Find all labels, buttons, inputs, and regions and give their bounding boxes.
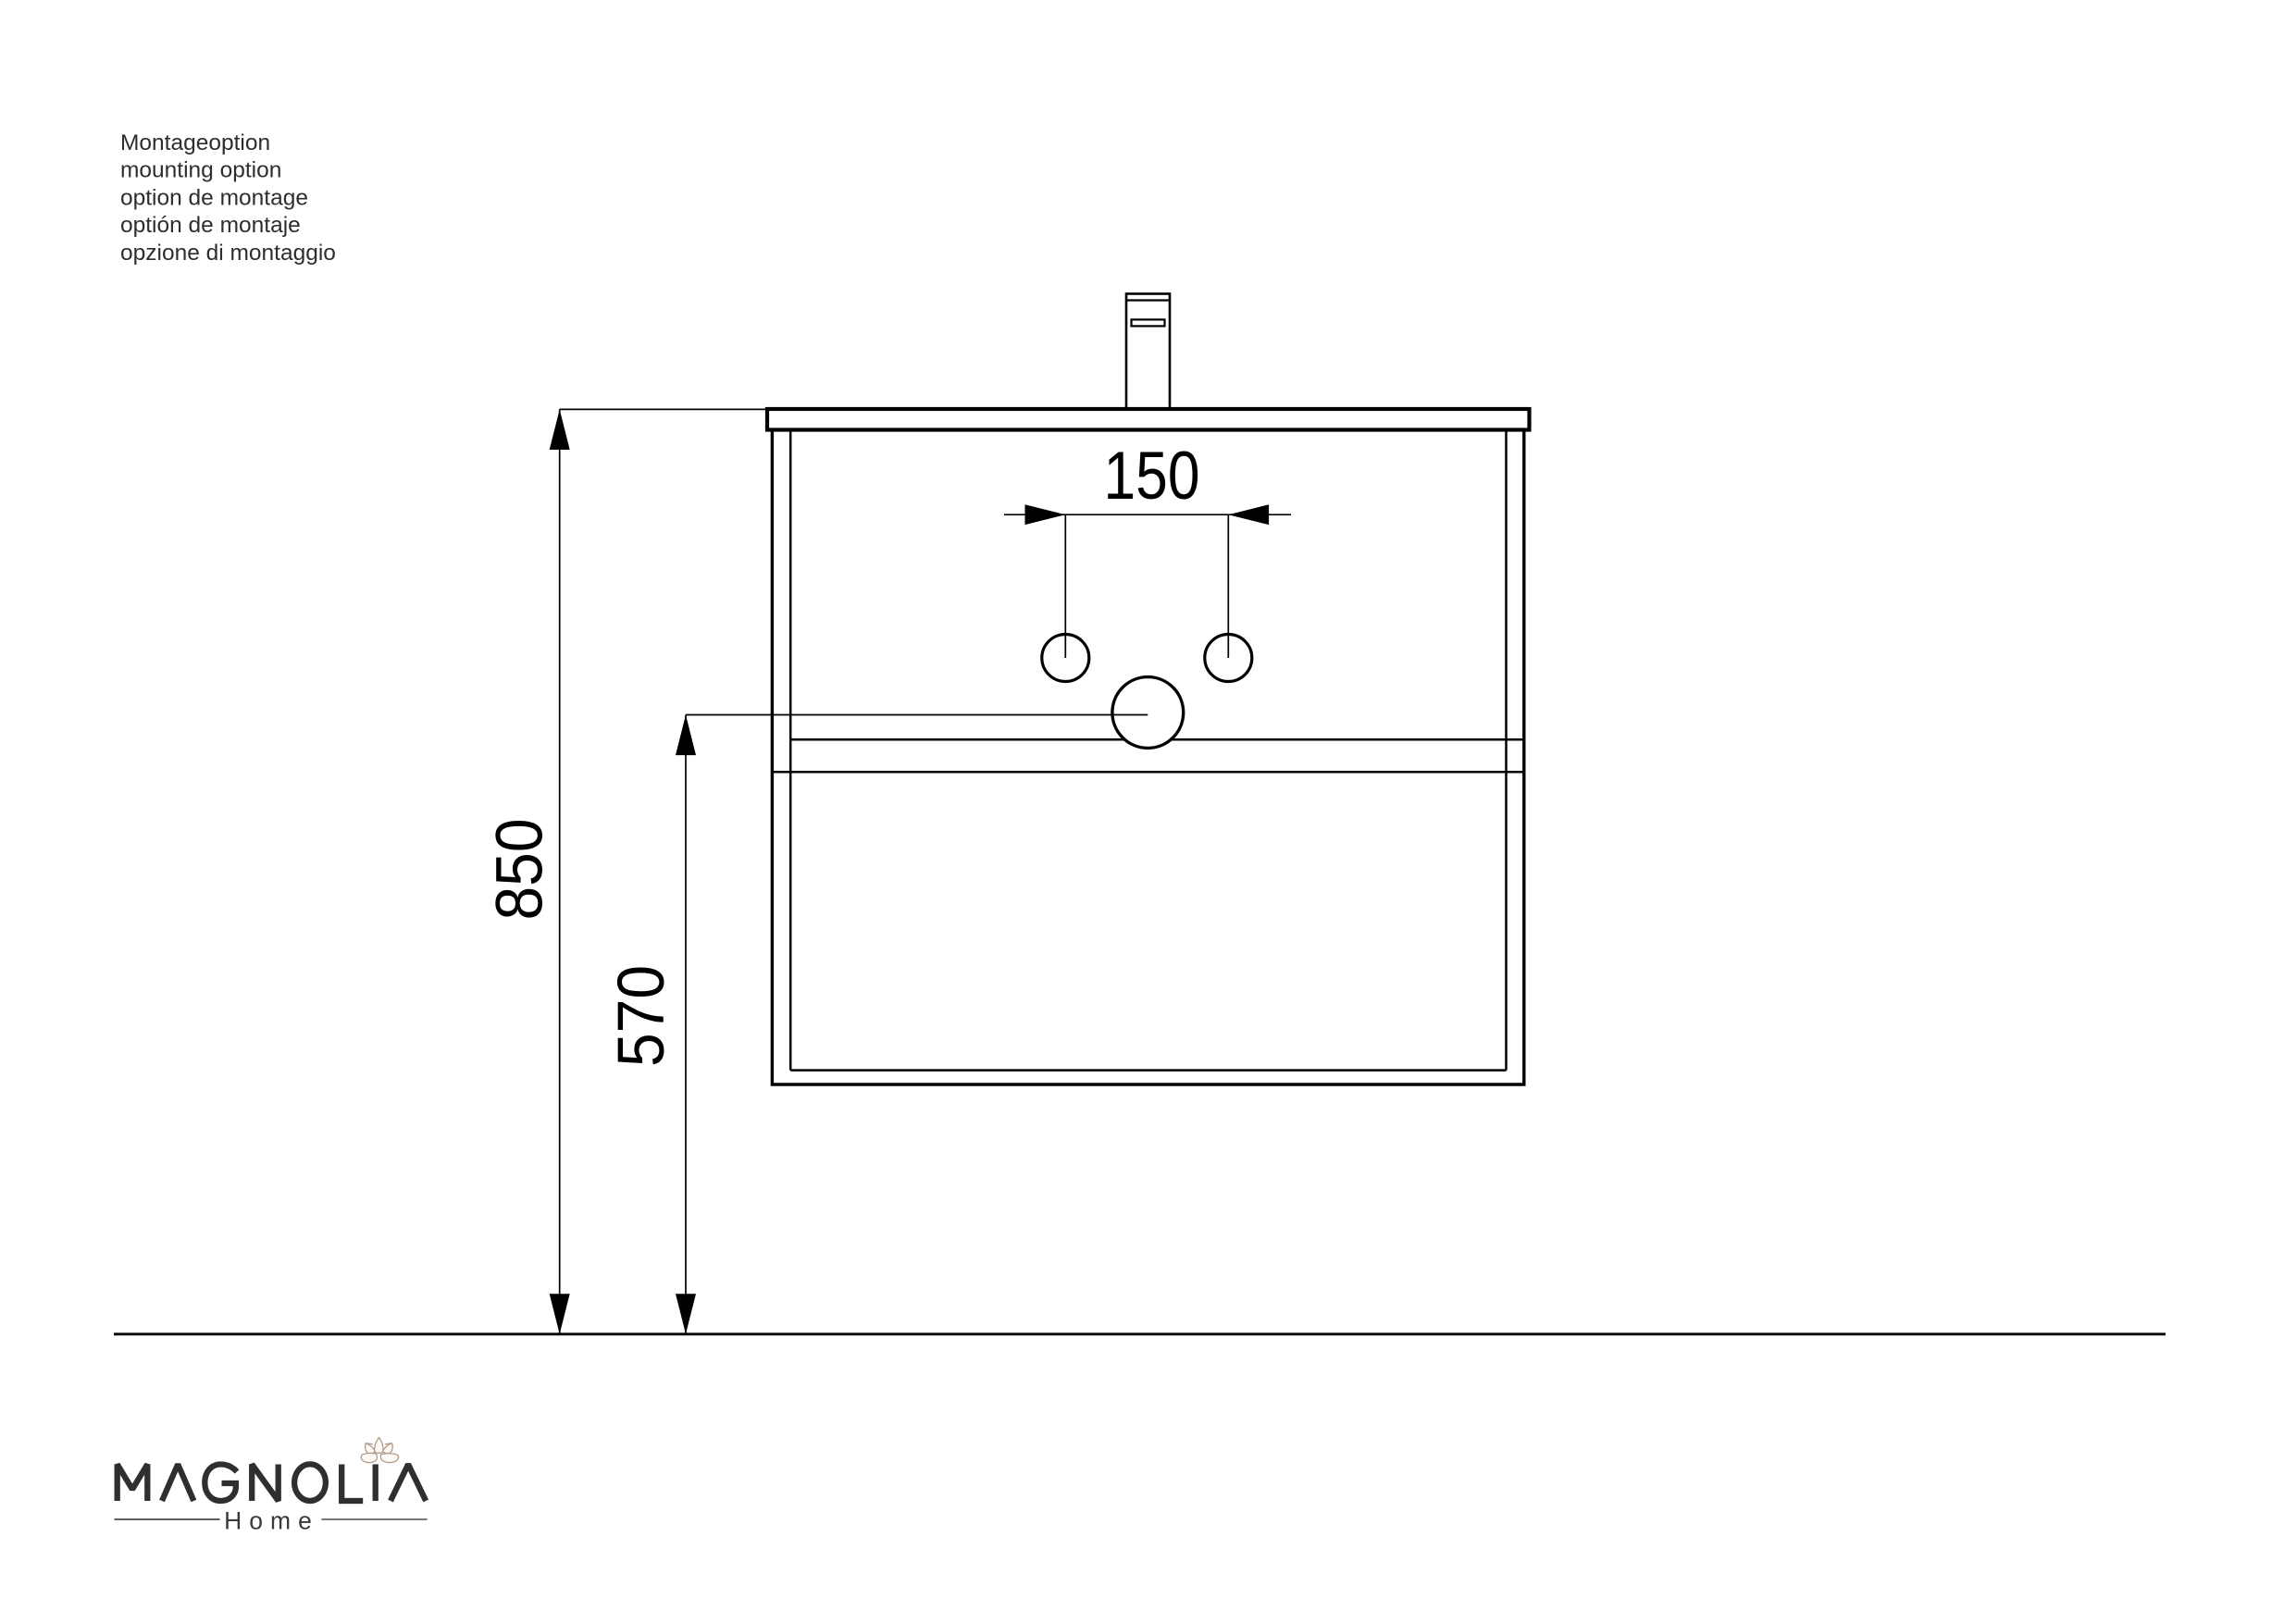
svg-text:opzione di montaggio: opzione di montaggio [120, 241, 336, 266]
svg-text:mounting option: mounting option [120, 158, 281, 183]
svg-text:570: 570 [604, 965, 678, 1067]
svg-text:Home: Home [224, 1507, 319, 1535]
svg-text:Montageoption: Montageoption [120, 130, 270, 155]
svg-text:option de montage: option de montage [120, 185, 308, 210]
svg-text:850: 850 [483, 819, 557, 921]
svg-text:optión de montaje: optión de montaje [120, 213, 301, 238]
svg-text:150: 150 [1104, 439, 1200, 514]
